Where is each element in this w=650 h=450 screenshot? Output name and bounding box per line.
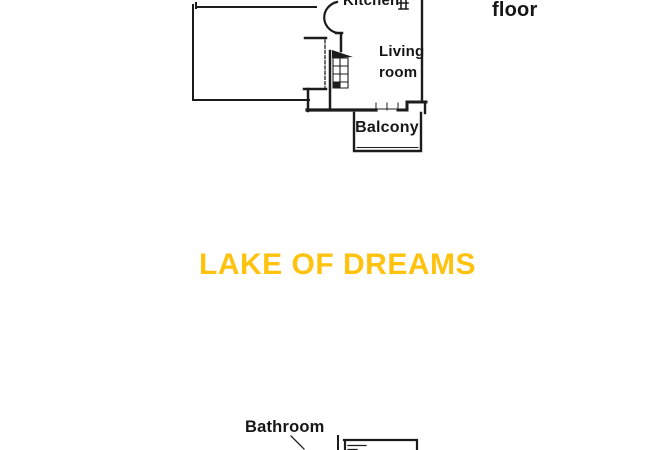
stairs-icon: [330, 50, 353, 110]
balcony-label: Balcony: [352, 117, 422, 138]
lower-floor-plan: [291, 436, 417, 450]
kitchen-label: Kitchen: [343, 0, 399, 11]
property-name-banner: LAKE OF DREAMS: [199, 250, 476, 280]
terrace-room-outline: [193, 3, 316, 100]
kitchen-fixture-icon: [399, 0, 408, 9]
bathroom-label: Bathroom: [245, 417, 325, 438]
kitchen-wall: [336, 33, 342, 51]
corridor-walls: [304, 38, 326, 111]
kitchen-door-arc: [324, 2, 337, 33]
floor-plan-drawing: [0, 0, 650, 450]
floor-plan-page: Kitchen floor Living room Balcony LAKE O…: [0, 0, 650, 450]
living-room-label: Living room: [379, 41, 424, 83]
balcony-door-opening: [376, 103, 398, 110]
lower-plan-outline: [338, 436, 417, 450]
floor-label: floor: [492, 0, 537, 23]
